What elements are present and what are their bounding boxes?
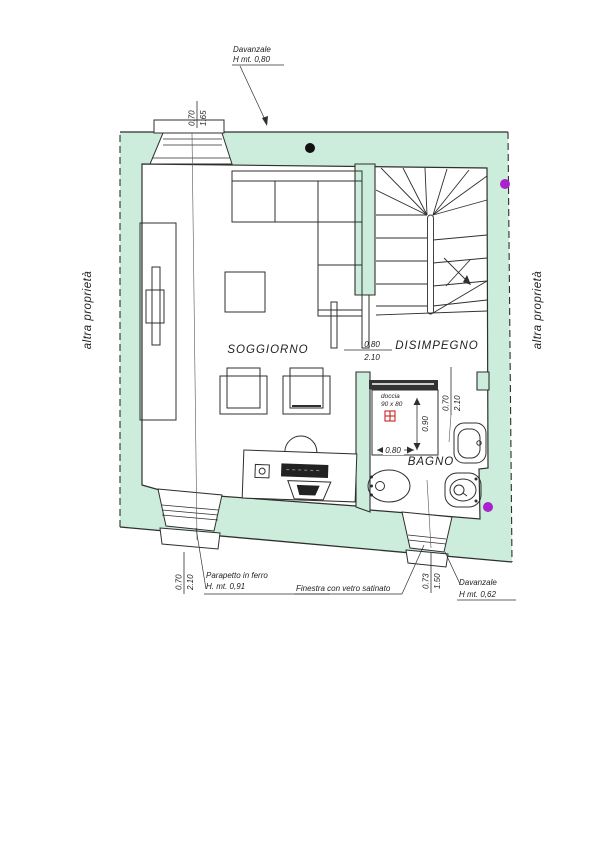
frosted-window-text: Finestra con vetro satinato xyxy=(296,584,391,593)
sill-top-text-2: H mt. 0,80 xyxy=(233,55,270,64)
dim-top-window-h: 1.65 xyxy=(199,110,208,126)
dim-bath-door-w: 0.70 xyxy=(442,395,451,411)
floor-plan-page: 0.90 0.80 doccia 90 x 80 xyxy=(0,0,615,864)
survey-marker-purple-bottom xyxy=(483,502,493,512)
dim-bath-door-h: 2.10 xyxy=(453,395,462,412)
survey-marker-purple-top xyxy=(500,179,510,189)
annotation-sill-top: Davanzale H mt. 0,80 xyxy=(232,45,284,126)
balcony-door xyxy=(158,489,222,549)
neighbor-label-left: altra proprietà xyxy=(82,271,94,350)
dim-top-window-w: 0.70 xyxy=(188,110,197,126)
dim-balcony-door: 0.70 2.10 xyxy=(175,552,196,594)
sill-top-text-1: Davanzale xyxy=(233,45,271,54)
room-label-bath: BAGNO xyxy=(408,456,455,468)
railing-text-1: Parapetto in ferro xyxy=(206,571,268,580)
top-window-reveal xyxy=(150,133,232,164)
floor-plan-drawing: 0.90 0.80 doccia 90 x 80 xyxy=(0,0,615,864)
dim-balcony-door-h: 2.10 xyxy=(186,574,195,591)
bath-door-stub-wall xyxy=(477,372,489,390)
shower-label-1: doccia xyxy=(381,393,400,400)
sill-bottom-text-2: H mt. 0,62 xyxy=(459,590,496,599)
shower-width-value: 0.80 xyxy=(385,446,401,455)
shower-depth-value: 0.90 xyxy=(421,416,430,432)
dim-living-door-h: 2.10 xyxy=(363,353,380,362)
dim-bath-window-w: 0.73 xyxy=(422,573,431,589)
room-label-hall: DISIMPEGNO xyxy=(395,340,478,352)
dim-bath-window-h: 1.50 xyxy=(433,573,442,589)
dim-living-door-w: 0.80 xyxy=(364,340,380,349)
shower-label-2: 90 x 80 xyxy=(381,401,403,408)
room-label-living: SOGGIORNO xyxy=(227,344,308,356)
balcony-door-reveal xyxy=(158,489,222,531)
stair-partition-wall xyxy=(355,164,375,295)
bath-window-reveal xyxy=(402,512,452,552)
dim-balcony-door-w: 0.70 xyxy=(175,574,184,590)
bath-partition-wall xyxy=(356,372,370,512)
railing-text-2: H. mt. 0,91 xyxy=(206,582,245,591)
bath-window xyxy=(402,512,452,567)
neighbor-label-right: altra proprietà xyxy=(532,271,544,350)
sill-bottom-text-1: Davanzale xyxy=(459,578,497,587)
survey-marker-black xyxy=(305,143,315,153)
